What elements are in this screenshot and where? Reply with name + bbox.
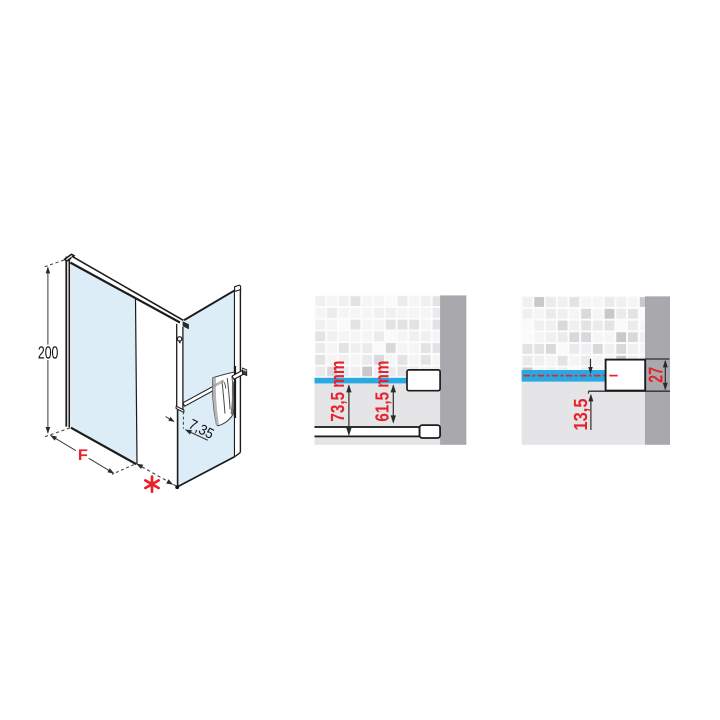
svg-text:73,5 mm: 73,5 mm <box>328 361 349 422</box>
svg-text:200: 200 <box>38 343 59 363</box>
svg-text:61,5 mm: 61,5 mm <box>372 361 393 422</box>
svg-text:27: 27 <box>645 367 667 383</box>
svg-text:13,5: 13,5 <box>571 398 592 430</box>
svg-text:F: F <box>78 447 88 464</box>
